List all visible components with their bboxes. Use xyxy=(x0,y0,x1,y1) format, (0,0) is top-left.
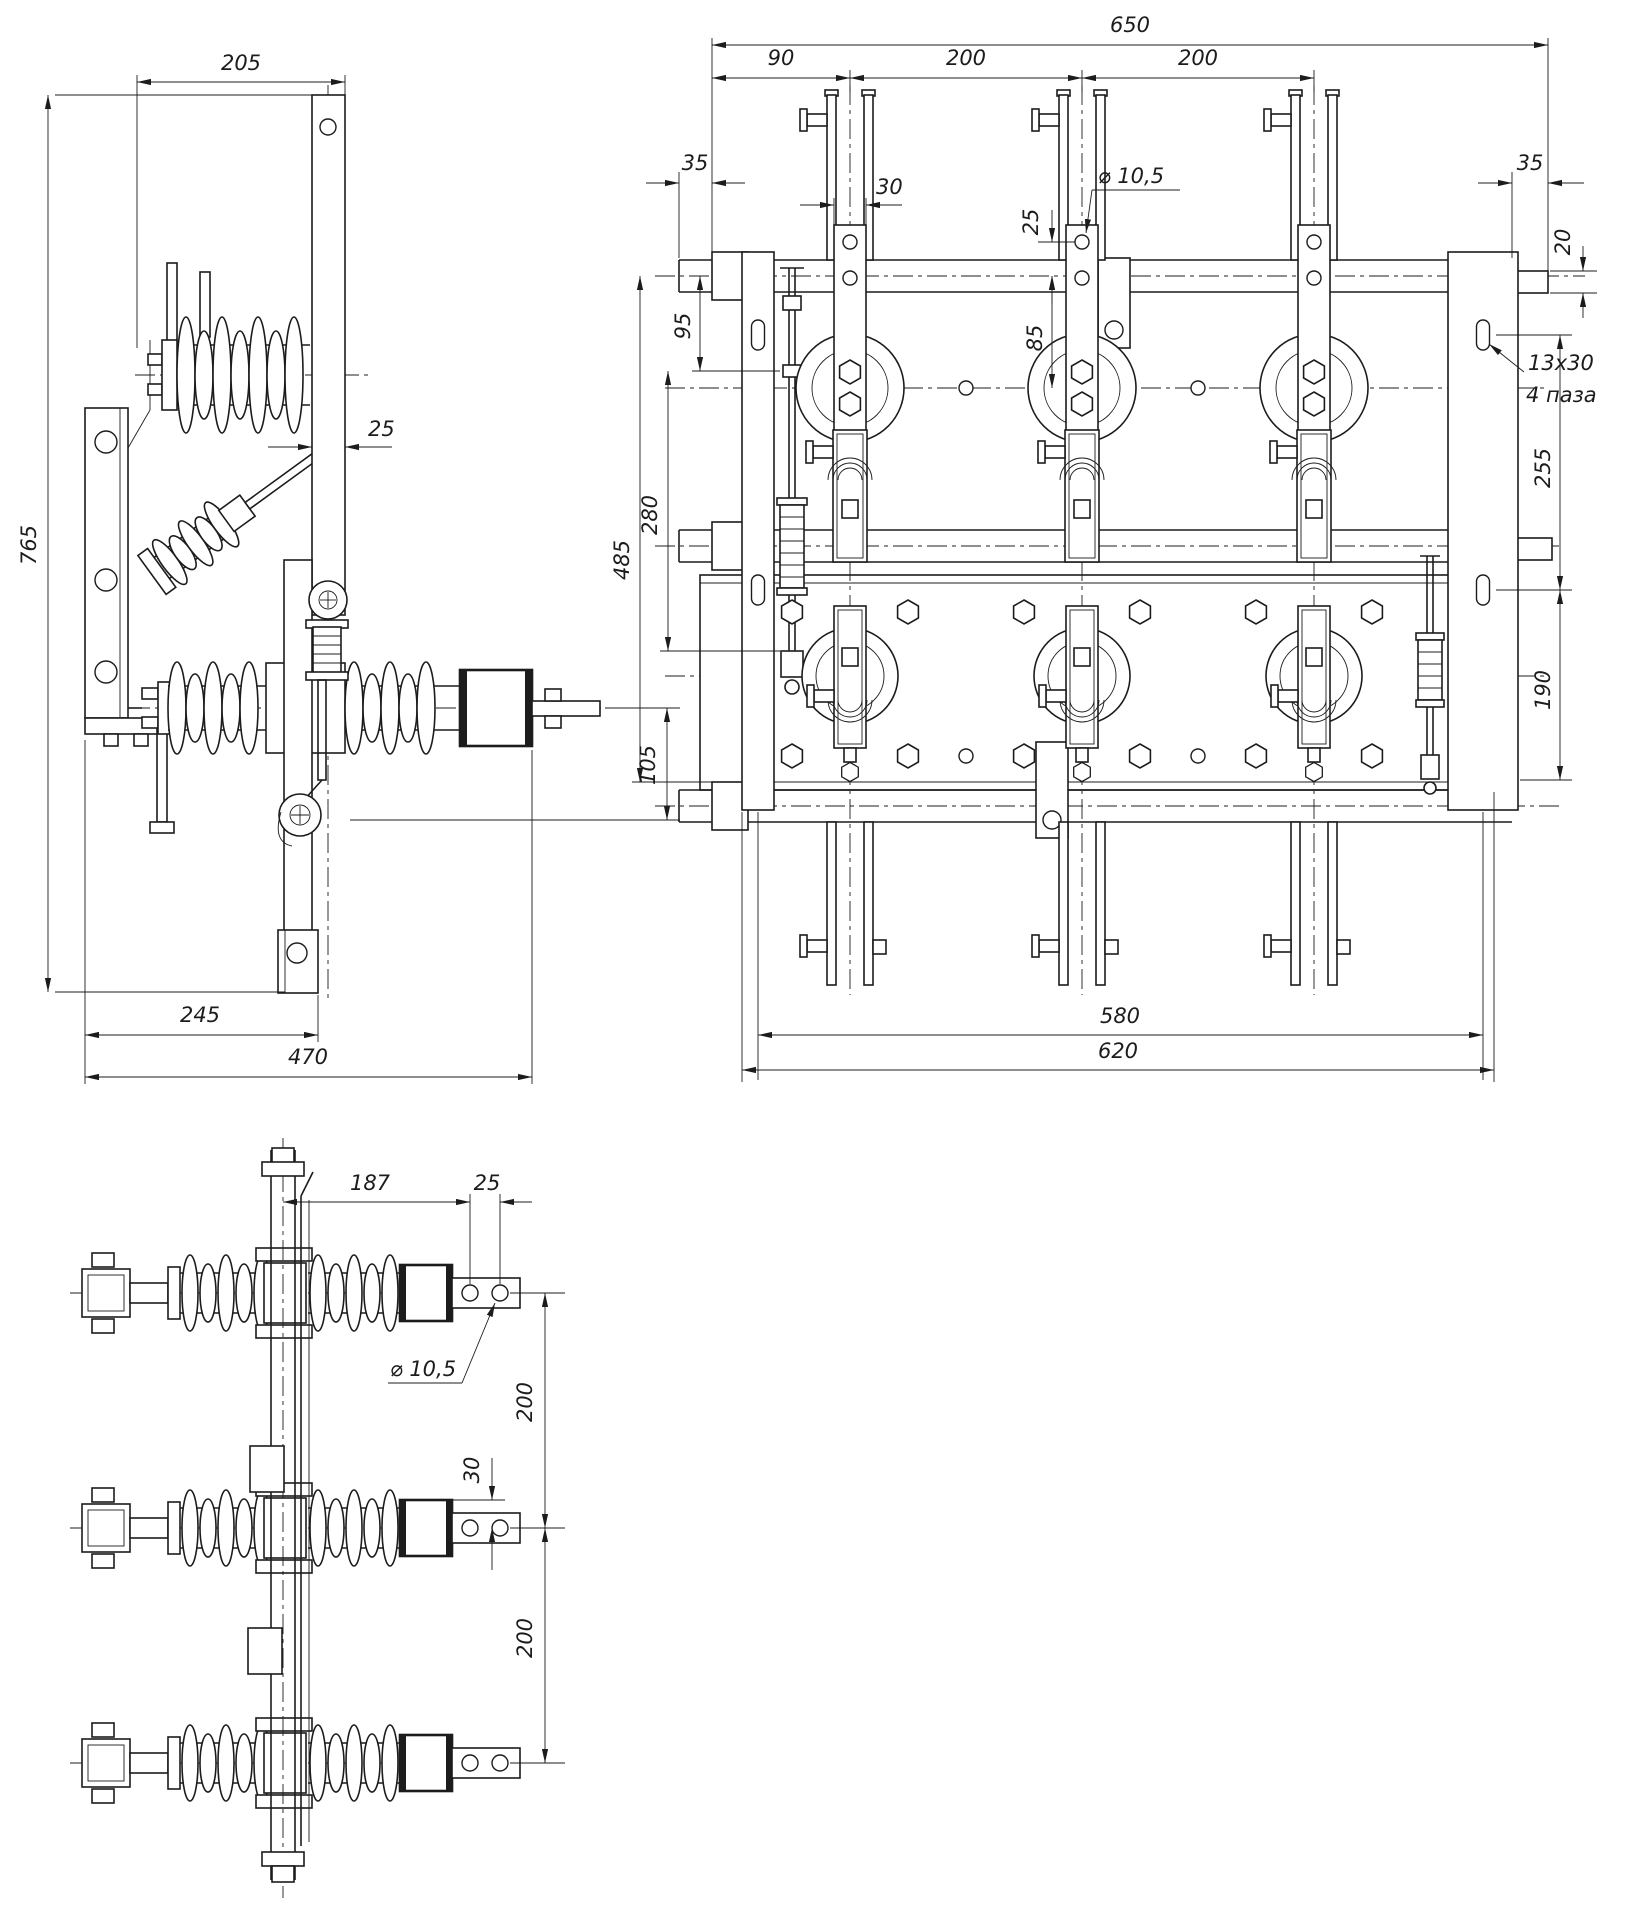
dim-frame-height: 485 xyxy=(610,540,634,580)
dim-rod-length: 280 xyxy=(638,495,662,535)
dim-hole-pitch: 25 xyxy=(474,1171,501,1195)
dim-contact-offset: 30 xyxy=(460,1457,484,1484)
dim-pole-pitch-a: 200 xyxy=(513,1382,537,1422)
mount-slot xyxy=(752,320,765,350)
dim-pivot-span: 245 xyxy=(180,1003,220,1027)
dim-top-width: 205 xyxy=(221,51,261,75)
dim-hole-to-axis: 25 xyxy=(1019,209,1043,236)
dim-overall-width: 470 xyxy=(288,1045,328,1069)
dim-overall-width: 650 xyxy=(1110,13,1150,37)
dim-terminal-reach: 187 xyxy=(350,1171,391,1195)
dim-frame-width: 620 xyxy=(1098,1039,1138,1063)
dim-overall-height: 765 xyxy=(17,525,41,565)
sheet-background xyxy=(0,0,1630,1920)
mount-slot xyxy=(1477,320,1490,350)
mount-slot xyxy=(752,575,765,605)
dim-slot-span-lower: 190 xyxy=(1531,670,1555,710)
drawing-sheet: 205 765 25 105 245 470 xyxy=(0,0,1630,1920)
drawing-canvas: 205 765 25 105 245 470 xyxy=(0,0,1630,1920)
dim-rod-top-offset: 95 xyxy=(671,313,695,340)
dim-hole-diameter: ⌀ 10,5 xyxy=(1098,164,1164,188)
insulator-lower xyxy=(142,662,600,754)
dim-slot-span-upper: 255 xyxy=(1531,448,1555,488)
dim-first-pole-offset: 90 xyxy=(768,46,795,70)
dim-axis-drop: 85 xyxy=(1023,325,1047,352)
dim-pole-pitch-a: 200 xyxy=(946,46,986,70)
mount-slot xyxy=(1477,575,1490,605)
dim-right-overhang: 35 xyxy=(1517,151,1544,175)
dim-pole-pitch-b: 200 xyxy=(1178,46,1218,70)
dim-mount-span: 580 xyxy=(1100,1004,1140,1028)
dim-slot-size: 13x30 xyxy=(1528,351,1594,375)
dim-slot-note: 4 паза xyxy=(1526,383,1597,407)
dim-pole-pitch-b: 200 xyxy=(513,1618,537,1658)
dim-blade-thickness: 25 xyxy=(368,417,395,441)
dim-blade-width: 30 xyxy=(876,175,903,199)
dim-left-overhang: 35 xyxy=(682,151,709,175)
dim-hole-diameter: ⌀ 10,5 xyxy=(390,1357,456,1381)
dim-end-step: 20 xyxy=(1551,229,1575,256)
